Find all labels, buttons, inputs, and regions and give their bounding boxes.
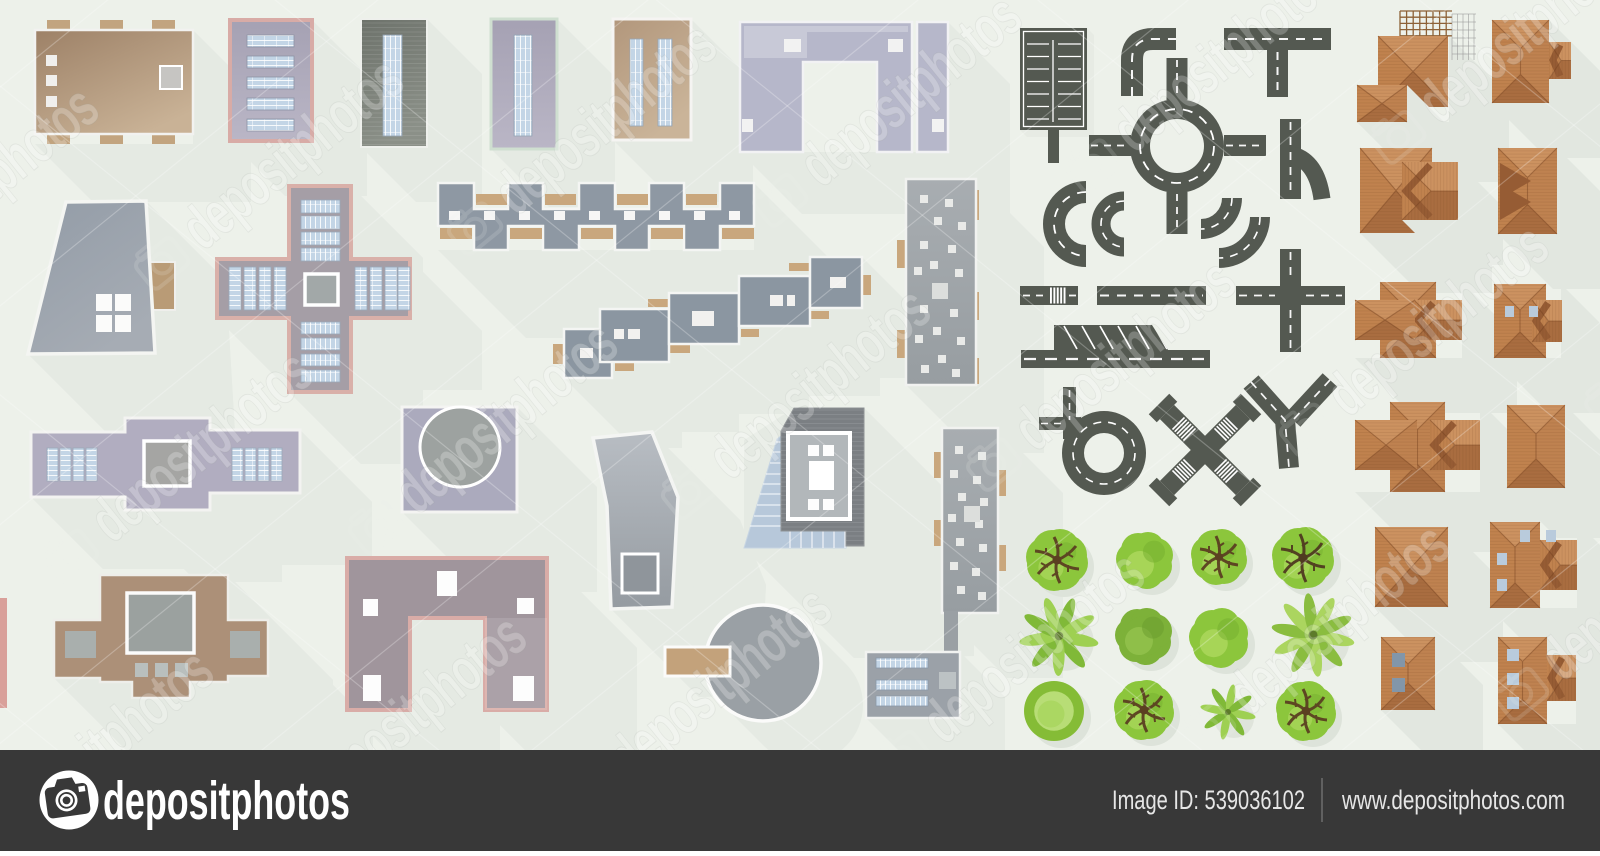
svg-text:www.depositphotos.com: www.depositphotos.com [1341, 785, 1565, 815]
svg-text:Image ID: 539036102: Image ID: 539036102 [1112, 785, 1305, 815]
svg-text:depositphotos: depositphotos [103, 771, 350, 831]
